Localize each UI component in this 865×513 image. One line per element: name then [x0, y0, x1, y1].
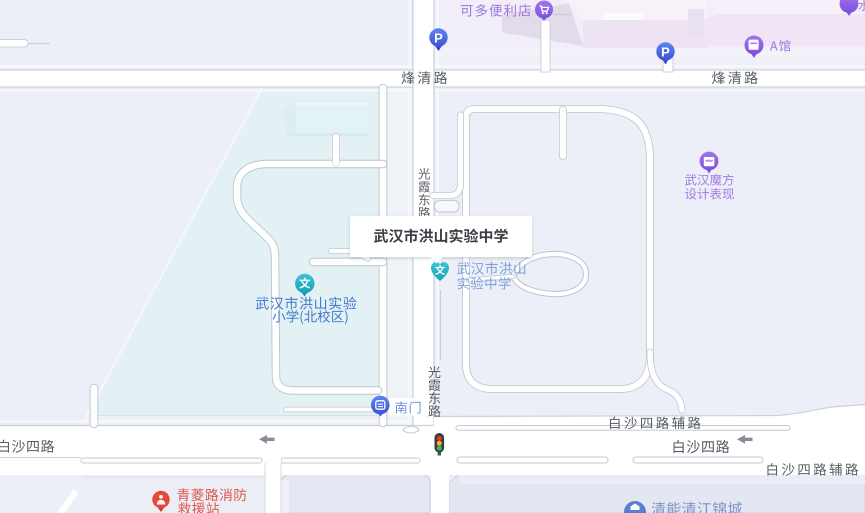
svg-text:P: P: [434, 31, 443, 46]
svg-text:P: P: [661, 45, 670, 60]
